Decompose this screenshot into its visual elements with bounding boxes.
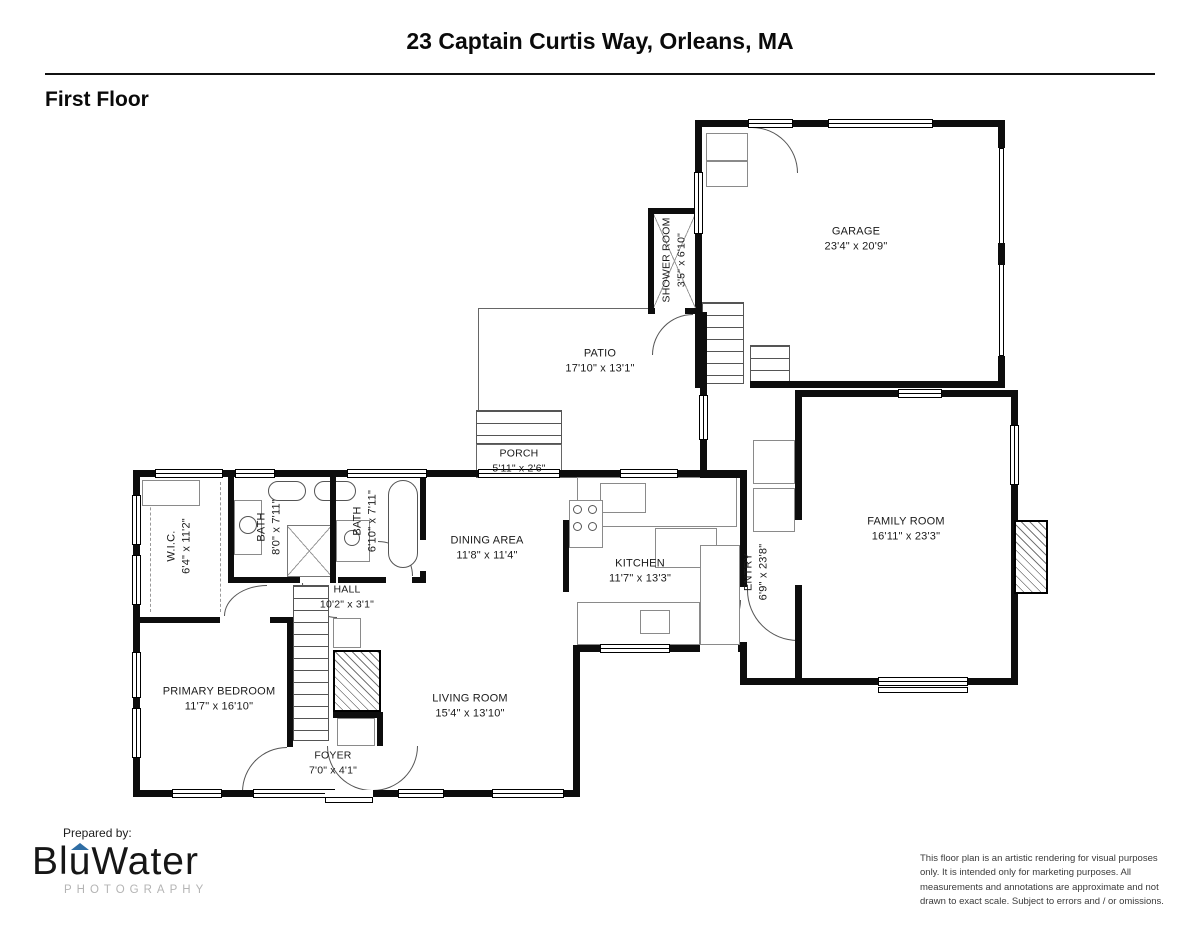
window — [132, 708, 141, 758]
room-label-living-room: LIVING ROOM 15'4" x 13'10" — [432, 692, 508, 723]
kitchen-sink — [600, 483, 646, 513]
room-label-foyer: FOYER 7'0" x 4'1" — [309, 748, 357, 777]
logo-text-part3: Water — [91, 840, 199, 883]
window — [620, 469, 678, 478]
wall — [573, 645, 580, 797]
window — [600, 644, 670, 653]
logo-subtitle: PHOTOGRAPHY — [64, 884, 208, 896]
fireplace — [1014, 520, 1048, 594]
door-opening — [700, 645, 738, 652]
garage-shelf — [706, 133, 748, 161]
window — [155, 469, 223, 478]
room-label-bath2: BATH 6'10" x 7'11" — [351, 490, 382, 552]
wall — [420, 477, 426, 540]
window — [694, 172, 703, 234]
logo-text-part2: u — [69, 840, 92, 884]
header-divider — [45, 73, 1155, 75]
burner — [573, 505, 582, 514]
window — [347, 469, 427, 478]
foyer-closet — [337, 718, 375, 746]
room-label-shower-room: SHOWER ROOM 3'5" x 6'10" — [659, 217, 688, 302]
toilet — [268, 481, 306, 501]
burner — [588, 505, 597, 514]
bathtub — [388, 480, 418, 568]
floor-label: First Floor — [45, 88, 149, 112]
room-label-entry: ENTRY 6'9" x 23'8" — [742, 544, 773, 601]
window — [132, 652, 141, 698]
wall — [330, 477, 336, 583]
wall — [795, 585, 802, 685]
porch-steps — [476, 410, 562, 444]
wall — [998, 120, 1005, 148]
room-label-wic: W.I.C. 6'4" x 11'2" — [165, 518, 196, 574]
window — [253, 789, 335, 798]
shower — [287, 525, 333, 577]
room-label-dining-area: DINING AREA 11'8" x 11'4" — [450, 534, 523, 565]
bluwater-logo: BluWater — [32, 840, 199, 884]
disclaimer-text: This floor plan is an artistic rendering… — [920, 852, 1172, 909]
room-label-bath1: BATH 8'0" x 7'11" — [255, 499, 286, 555]
burner — [588, 522, 597, 531]
closet — [333, 618, 361, 648]
page-title: 23 Captain Curtis Way, Orleans, MA — [0, 28, 1200, 55]
window — [492, 789, 564, 798]
window — [235, 469, 275, 478]
closet-rod — [220, 482, 221, 612]
room-label-patio: PATIO 17'10" x 13'1" — [565, 347, 634, 378]
floor-plan-page: 23 Captain Curtis Way, Orleans, MA First… — [0, 0, 1200, 927]
burner — [573, 522, 582, 531]
door-arc — [224, 585, 267, 616]
door-arc — [752, 127, 798, 173]
stairs — [702, 302, 744, 384]
room-label-porch: PORCH 5'11" x 2'6" — [492, 446, 545, 475]
wall — [287, 617, 293, 747]
wall — [563, 520, 569, 592]
wall — [750, 381, 1005, 388]
logo-text-part1: Bl — [32, 840, 69, 883]
room-label-hall: HALL 10'2" x 3'1" — [320, 582, 374, 611]
window — [1010, 425, 1019, 485]
kitchen-counter — [700, 545, 740, 645]
window — [132, 495, 141, 545]
closet — [753, 440, 795, 484]
garage-shelf — [706, 161, 748, 187]
front-door-opening — [325, 790, 373, 797]
logo-triangle-icon — [71, 843, 89, 850]
prepared-by-label: Prepared by: — [63, 826, 132, 840]
window — [398, 789, 444, 798]
window — [699, 395, 708, 440]
window — [878, 677, 968, 686]
wall — [333, 712, 383, 718]
wall — [234, 577, 300, 583]
window — [748, 119, 793, 128]
window — [828, 119, 933, 128]
window — [132, 555, 141, 605]
room-label-family-room: FAMILY ROOM 16'11" x 23'3" — [867, 515, 945, 546]
fireplace-chimney — [333, 650, 381, 712]
wall — [998, 243, 1005, 265]
wall — [998, 356, 1005, 388]
bay-window-sill — [878, 687, 968, 693]
door-arc — [373, 746, 418, 791]
room-label-kitchen: KITCHEN 11'7" x 13'3" — [609, 557, 671, 588]
closet — [753, 488, 795, 532]
window — [172, 789, 222, 798]
wic-shelf — [142, 480, 200, 506]
door-opening — [655, 306, 685, 314]
wall — [228, 477, 234, 583]
wall — [133, 617, 220, 623]
room-label-garage: GARAGE 23'4" x 20'9" — [825, 225, 888, 256]
wall — [412, 577, 426, 583]
room-label-primary-bedroom: PRIMARY BEDROOM 11'7" x 16'10" — [163, 685, 276, 716]
door-arc — [242, 747, 287, 792]
window — [898, 389, 942, 398]
prep-sink — [640, 610, 670, 634]
wall — [795, 390, 802, 520]
kitchen-counter — [577, 602, 700, 645]
wall — [377, 712, 383, 746]
stairs — [750, 345, 790, 383]
